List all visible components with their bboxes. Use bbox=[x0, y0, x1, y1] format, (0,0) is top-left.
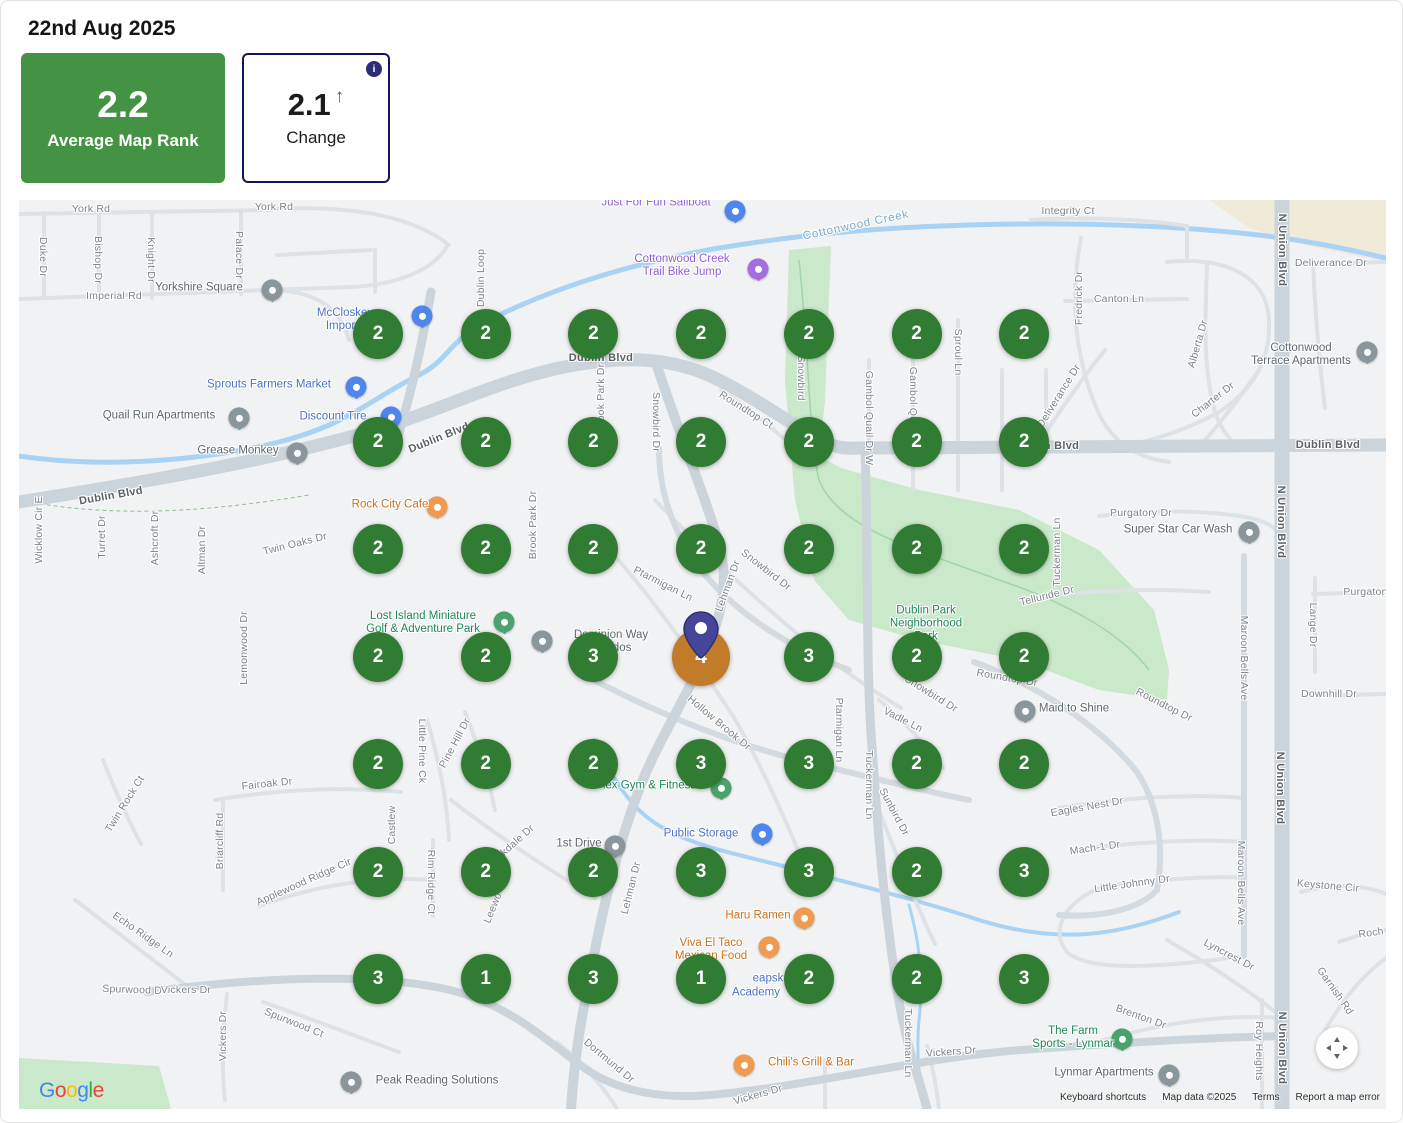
street-label: Palace Dr bbox=[233, 231, 245, 279]
street-label: York Rd bbox=[72, 203, 110, 215]
street-label: Lange Dr bbox=[1307, 603, 1319, 648]
cheapskate-academy-part3: Academy bbox=[732, 987, 780, 1000]
rock-city-cafe: Rock City Cafe bbox=[352, 499, 429, 512]
sprouts-farmers-market-icon bbox=[346, 376, 367, 397]
maid-to-shine: Maid to Shine bbox=[1039, 703, 1109, 716]
yorkshire-square: Yorkshire Square bbox=[155, 282, 243, 295]
lynmar-apartments-icon bbox=[1159, 1064, 1180, 1085]
street-label: Deliverance Dr bbox=[1295, 257, 1367, 269]
rank-marker-r7-c4[interactable]: 1 bbox=[676, 954, 726, 1004]
rank-marker-r4-c3[interactable]: 3 bbox=[568, 632, 618, 682]
street-label: Purgatory bbox=[1343, 586, 1386, 598]
rank-marker-r7-c3[interactable]: 3 bbox=[568, 954, 618, 1004]
rank-marker-r1-c7[interactable]: 2 bbox=[999, 309, 1049, 359]
rank-marker-r6-c4[interactable]: 3 bbox=[676, 847, 726, 897]
rank-marker-r6-c7[interactable]: 3 bbox=[999, 847, 1049, 897]
street-label: Ashcroft Dr bbox=[149, 511, 161, 566]
street-label: Vickers Dr bbox=[217, 1011, 229, 1061]
rank-marker-r6-c1[interactable]: 2 bbox=[353, 847, 403, 897]
street-label: Lemonwood Dr bbox=[238, 611, 250, 685]
street-label: Purgatory Dr bbox=[1110, 507, 1172, 519]
street-label: Spurwood Dr bbox=[102, 983, 166, 997]
rank-marker-r5-c7[interactable]: 2 bbox=[999, 739, 1049, 789]
cottonwood-creek-trail-bike-jump-icon bbox=[748, 258, 769, 279]
rank-marker-r2-c1[interactable]: 2 bbox=[353, 417, 403, 467]
change-label: Change bbox=[286, 128, 346, 148]
street-label: Briarcliff Rd bbox=[214, 813, 226, 870]
lost-island-miniature-golf-icon bbox=[494, 611, 515, 632]
street-label: N Union Blvd bbox=[1276, 1012, 1288, 1085]
haru-ramen-icon bbox=[794, 907, 815, 928]
street-label: Tuckerman Ln bbox=[1051, 517, 1063, 586]
rank-marker-r4-c4[interactable]: 4 bbox=[672, 628, 730, 686]
rank-marker-r2-c7[interactable]: 2 bbox=[999, 417, 1049, 467]
change-value: 2.1 bbox=[288, 89, 331, 120]
street-label: Canton Ln bbox=[1094, 293, 1144, 305]
info-icon[interactable]: i bbox=[366, 61, 382, 77]
rank-marker-r5-c1[interactable]: 2 bbox=[353, 739, 403, 789]
rank-marker-r3-c2[interactable]: 2 bbox=[461, 524, 511, 574]
terms-link[interactable]: Terms bbox=[1252, 1092, 1279, 1103]
rock-city-cafe-icon bbox=[427, 496, 448, 517]
rank-marker-r1-c4[interactable]: 2 bbox=[676, 309, 726, 359]
rank-marker-r3-c4[interactable]: 2 bbox=[676, 524, 726, 574]
street-label: Tuckerman Ln bbox=[902, 1008, 914, 1077]
street-label: Integrity Ct bbox=[1041, 205, 1094, 217]
rank-marker-r5-c6[interactable]: 2 bbox=[892, 739, 942, 789]
street-label: N Union Blvd bbox=[1276, 214, 1288, 287]
rank-marker-r1-c2[interactable]: 2 bbox=[461, 309, 511, 359]
street-label: Tuckerman Ln bbox=[863, 750, 875, 819]
rank-marker-r1-c1[interactable]: 2 bbox=[353, 309, 403, 359]
rank-marker-r5-c5[interactable]: 3 bbox=[784, 739, 834, 789]
rank-marker-r7-c1[interactable]: 3 bbox=[353, 954, 403, 1004]
cottonwood-terrace-apartments-icon bbox=[1357, 341, 1378, 362]
street-label: Imperial Rd bbox=[86, 290, 142, 302]
rank-marker-r4-c2[interactable]: 2 bbox=[461, 632, 511, 682]
viva-el-taco-icon bbox=[759, 936, 780, 957]
rank-marker-r1-c6[interactable]: 2 bbox=[892, 309, 942, 359]
rank-marker-r3-c1[interactable]: 2 bbox=[353, 524, 403, 574]
super-star-car-wash-icon bbox=[1239, 521, 1260, 542]
quail-run-apartments-icon bbox=[229, 407, 250, 428]
rank-marker-r3-c6[interactable]: 2 bbox=[892, 524, 942, 574]
cottonwood-terrace-apartments: CottonwoodTerrace Apartments bbox=[1251, 342, 1351, 368]
rank-marker-r1-c5[interactable]: 2 bbox=[784, 309, 834, 359]
haru-ramen: Haru Ramen bbox=[725, 910, 790, 923]
street-label: Turret Dr bbox=[96, 515, 108, 558]
chilis-grill-bar-icon bbox=[734, 1054, 755, 1075]
rank-marker-r7-c5[interactable]: 2 bbox=[784, 954, 834, 1004]
rank-marker-r2-c5[interactable]: 2 bbox=[784, 417, 834, 467]
rank-marker-r2-c4[interactable]: 2 bbox=[676, 417, 726, 467]
street-label: Vickers Dr bbox=[161, 984, 211, 996]
rank-marker-r3-c3[interactable]: 2 bbox=[568, 524, 618, 574]
mccloskey-imports-icon bbox=[412, 305, 433, 326]
map-data-copyright: Map data ©2025 bbox=[1162, 1092, 1236, 1103]
street-label: Maroon Bells Ave bbox=[1235, 841, 1247, 926]
rank-marker-r7-c7[interactable]: 3 bbox=[999, 954, 1049, 1004]
street-label: Bishop Dr bbox=[92, 236, 104, 284]
rank-marker-r7-c2[interactable]: 1 bbox=[461, 954, 511, 1004]
street-label: Little Pine Ck bbox=[416, 719, 428, 784]
chilis-grill-bar: Chili's Grill & Bar bbox=[768, 1057, 854, 1070]
street-label: Gambol Quail Dr W bbox=[863, 371, 875, 465]
street-label: Snowbird Dr bbox=[650, 392, 662, 452]
street-label: Rim Ridge Ct bbox=[425, 850, 437, 915]
google-logo[interactable]: Google bbox=[39, 1079, 104, 1103]
rank-marker-r2-c3[interactable]: 2 bbox=[568, 417, 618, 467]
super-star-car-wash: Super Star Car Wash bbox=[1124, 524, 1233, 537]
yorkshire-square-icon bbox=[262, 279, 283, 300]
quail-run-apartments: Quail Run Apartments bbox=[103, 410, 216, 423]
the-farm-sports-lynmar: The FarmSports - Lynmar bbox=[1032, 1025, 1113, 1051]
street-label: Knight Dr bbox=[145, 237, 157, 283]
street-label: N Union Blvd bbox=[1274, 752, 1286, 825]
average-map-rank-card: 2.2 Average Map Rank bbox=[21, 53, 225, 183]
report-map-error-link[interactable]: Report a map error bbox=[1296, 1092, 1380, 1103]
peak-reading-solutions: Peak Reading Solutions bbox=[376, 1075, 499, 1088]
cottonwood-creek-trail-bike-jump: Cottonwood CreekTrail Bike Jump bbox=[634, 253, 729, 279]
average-map-rank-label: Average Map Rank bbox=[47, 131, 198, 151]
street-label: Brook Park Dr bbox=[527, 491, 539, 560]
map[interactable]: York RdYork RdDuke DrBishop DrKnight DrP… bbox=[19, 200, 1386, 1109]
lynmar-apartments: Lynmar Apartments bbox=[1054, 1067, 1153, 1080]
rank-marker-r4-c6[interactable]: 2 bbox=[892, 632, 942, 682]
report-date: 22nd Aug 2025 bbox=[28, 17, 175, 41]
street-label: Snowbird bbox=[795, 355, 807, 400]
rank-marker-r3-c5[interactable]: 2 bbox=[784, 524, 834, 574]
street-label: Dublin Blvd bbox=[1296, 439, 1360, 451]
rank-marker-r4-c1[interactable]: 2 bbox=[353, 632, 403, 682]
rank-marker-r6-c2[interactable]: 2 bbox=[461, 847, 511, 897]
public-storage-icon bbox=[752, 823, 773, 844]
rank-marker-r4-c5[interactable]: 3 bbox=[784, 632, 834, 682]
street-label: Roy Heights bbox=[1253, 1021, 1265, 1080]
rank-marker-r1-c3[interactable]: 2 bbox=[568, 309, 618, 359]
rank-report-page: 22nd Aug 2025 2.2 Average Map Rank i 2.1… bbox=[0, 0, 1403, 1123]
maid-to-shine-icon bbox=[1015, 700, 1036, 721]
street-label: Dublin Loop bbox=[475, 249, 487, 307]
rank-marker-r5-c4[interactable]: 3 bbox=[676, 739, 726, 789]
rank-marker-r5-c2[interactable]: 2 bbox=[461, 739, 511, 789]
street-label: Sproul Ln bbox=[952, 329, 964, 376]
street-label: Fredrick Dr bbox=[1073, 271, 1085, 325]
rank-marker-r3-c7[interactable]: 2 bbox=[999, 524, 1049, 574]
keyboard-shortcuts-link[interactable]: Keyboard shortcuts bbox=[1060, 1092, 1146, 1103]
rank-marker-r6-c6[interactable]: 2 bbox=[892, 847, 942, 897]
rank-marker-r2-c6[interactable]: 2 bbox=[892, 417, 942, 467]
sprouts-farmers-market: Sprouts Farmers Market bbox=[207, 379, 331, 392]
street-label: Castlew bbox=[386, 806, 398, 845]
just-for-fun-sailboat: Just For Fun Sailboat bbox=[601, 200, 710, 210]
arrow-up-icon: ↑ bbox=[335, 87, 345, 106]
rank-marker-r5-c3[interactable]: 2 bbox=[568, 739, 618, 789]
rank-marker-r2-c2[interactable]: 2 bbox=[461, 417, 511, 467]
street-label: Altman Dr bbox=[196, 526, 208, 574]
street-label: Ptarmigan Ln bbox=[833, 698, 845, 763]
street-label: Maroon Bells Ave bbox=[1238, 616, 1250, 701]
average-map-rank-value: 2.2 bbox=[97, 86, 148, 123]
dominion-way-condos-icon bbox=[532, 630, 553, 651]
grease-monkey: Grease Monkey bbox=[197, 445, 278, 458]
grease-monkey-icon bbox=[287, 442, 308, 463]
change-card: i 2.1 ↑ Change bbox=[242, 53, 390, 183]
street-label: Wicklow Cir E bbox=[33, 496, 45, 563]
just-for-fun-sailboat-icon bbox=[725, 200, 746, 221]
the-farm-sports-lynmar-icon bbox=[1112, 1028, 1133, 1049]
map-attribution: Keyboard shortcuts Map data ©2025 Terms … bbox=[1060, 1092, 1380, 1103]
street-label: York Rd bbox=[255, 201, 293, 213]
street-label: Duke Dr bbox=[37, 237, 49, 277]
rank-marker-r6-c5[interactable]: 3 bbox=[784, 847, 834, 897]
pan-arrows-icon bbox=[1324, 1035, 1350, 1061]
public-storage: Public Storage bbox=[664, 828, 739, 841]
rank-marker-r6-c3[interactable]: 2 bbox=[568, 847, 618, 897]
discount-tire: Discount Tire bbox=[299, 411, 366, 424]
pan-control[interactable] bbox=[1316, 1027, 1358, 1069]
rank-marker-r4-c7[interactable]: 2 bbox=[999, 632, 1049, 682]
peak-reading-solutions-icon bbox=[341, 1071, 362, 1092]
street-label: N Union Blvd bbox=[1275, 486, 1287, 559]
street-label: Downhill Dr bbox=[1301, 688, 1357, 700]
rank-marker-r7-c6[interactable]: 2 bbox=[892, 954, 942, 1004]
